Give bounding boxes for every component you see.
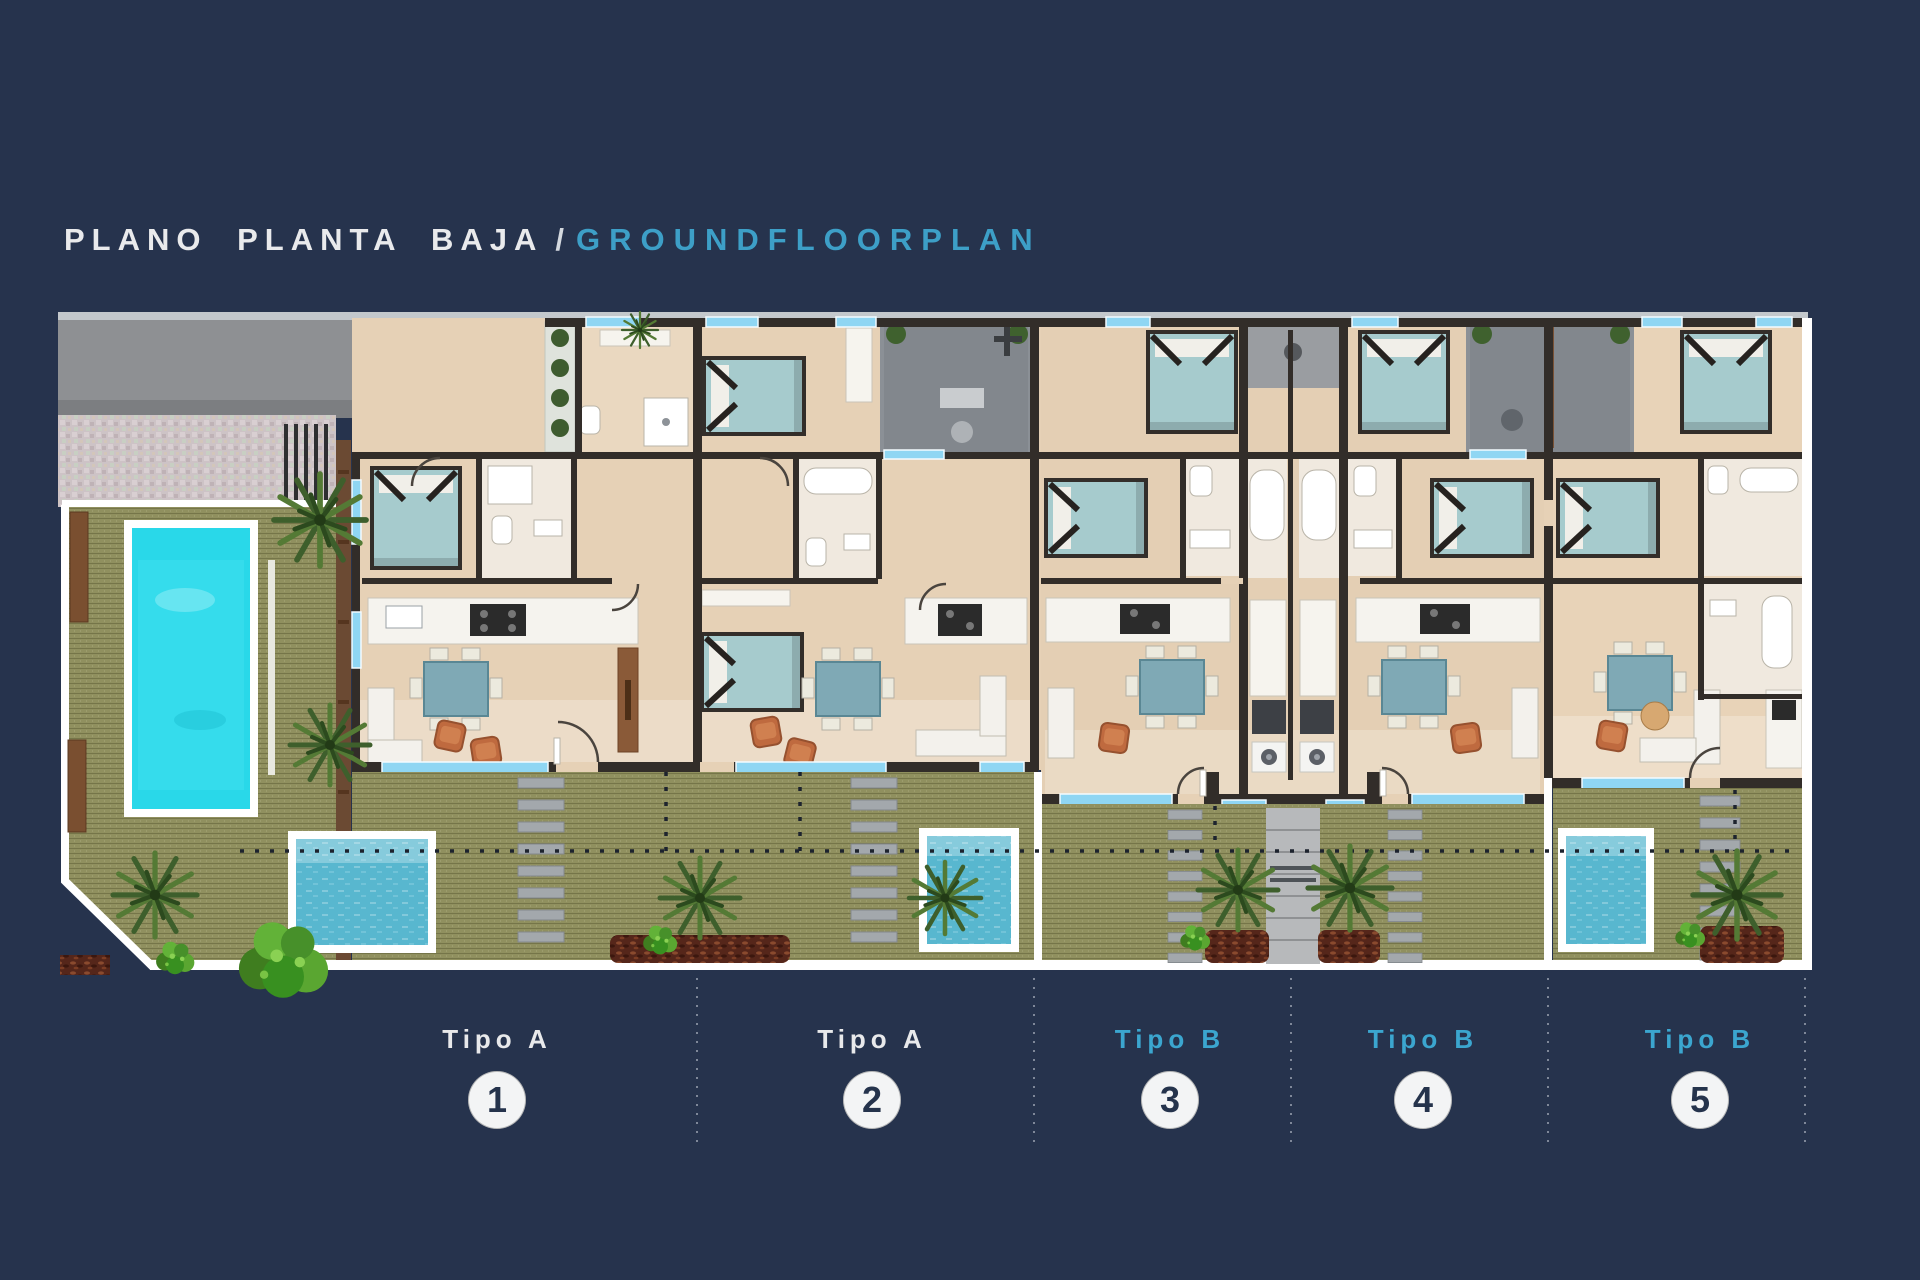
title-separator: /: [543, 222, 576, 257]
page-title: PLANO PLANTA BAJA/GROUNDFLOORPLAN: [64, 222, 1042, 258]
title-english: GROUNDFLOORPLAN: [576, 222, 1042, 257]
unit-label-1: Tipo A 1: [407, 1024, 587, 1129]
unit-label-3: Tipo B 3: [1080, 1024, 1260, 1129]
unit-type-3: Tipo B: [1080, 1024, 1260, 1055]
unit-label-4: Tipo B 4: [1333, 1024, 1513, 1129]
unit-type-2: Tipo A: [782, 1024, 962, 1055]
unit-type-1: Tipo A: [407, 1024, 587, 1055]
unit-number-badge-1: 1: [468, 1071, 526, 1129]
unit-number-badge-3: 3: [1141, 1071, 1199, 1129]
unit-type-5: Tipo B: [1610, 1024, 1790, 1055]
title-spanish: PLANO PLANTA BAJA: [64, 222, 543, 257]
unit-number-badge-2: 2: [843, 1071, 901, 1129]
main-pool: [124, 520, 258, 817]
unit-number-badge-4: 4: [1394, 1071, 1452, 1129]
unit-type-4: Tipo B: [1333, 1024, 1513, 1055]
unit-number-badge-5: 5: [1671, 1071, 1729, 1129]
unit-label-5: Tipo B 5: [1610, 1024, 1790, 1129]
brochure-page: PLANO PLANTA BAJA/GROUNDFLOORPLAN Tipo A…: [0, 0, 1920, 1280]
unit-label-2: Tipo A 2: [782, 1024, 962, 1129]
